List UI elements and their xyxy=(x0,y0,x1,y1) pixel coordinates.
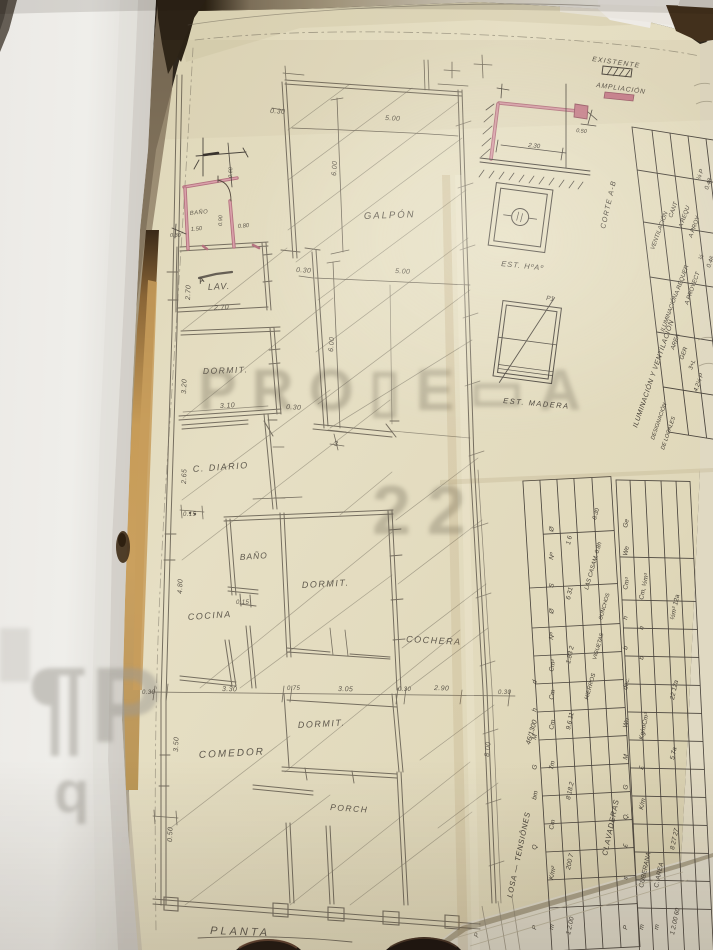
svg-text:0.90: 0.90 xyxy=(218,214,224,226)
svg-text:LAV.: LAV. xyxy=(208,281,231,292)
svg-text:DORMIT.: DORMIT. xyxy=(203,364,249,376)
svg-text:0.30: 0.30 xyxy=(170,233,182,239)
svg-text:3.10: 3.10 xyxy=(220,402,236,410)
svg-text:3.50: 3.50 xyxy=(173,737,181,752)
svg-text:1.50: 1.50 xyxy=(191,226,204,233)
svg-text:3.05: 3.05 xyxy=(338,686,353,693)
svg-text:4.80: 4.80 xyxy=(177,579,185,594)
svg-text:2.70: 2.70 xyxy=(213,304,230,312)
svg-text:2.90: 2.90 xyxy=(433,685,449,693)
svg-text:0.15: 0.15 xyxy=(183,512,197,518)
svg-text:0.30: 0.30 xyxy=(398,687,412,693)
svg-text:2.70: 2.70 xyxy=(185,285,193,301)
svg-text:3: 3 xyxy=(334,441,338,448)
svg-text:¶P: ¶P xyxy=(28,644,164,765)
svg-text:2.65: 2.65 xyxy=(181,469,189,485)
svg-text:3.20: 3.20 xyxy=(181,379,189,394)
svg-text:0.15: 0.15 xyxy=(236,600,250,606)
svg-text:0.30: 0.30 xyxy=(142,690,156,696)
svg-text:0.75: 0.75 xyxy=(287,686,301,692)
svg-text:0.30: 0.30 xyxy=(498,690,512,696)
svg-text:0.60: 0.60 xyxy=(228,166,234,178)
svg-text:0.30: 0.30 xyxy=(286,404,302,412)
svg-text:BAÑO: BAÑO xyxy=(239,550,268,562)
svg-text:3.30: 3.30 xyxy=(222,686,237,693)
